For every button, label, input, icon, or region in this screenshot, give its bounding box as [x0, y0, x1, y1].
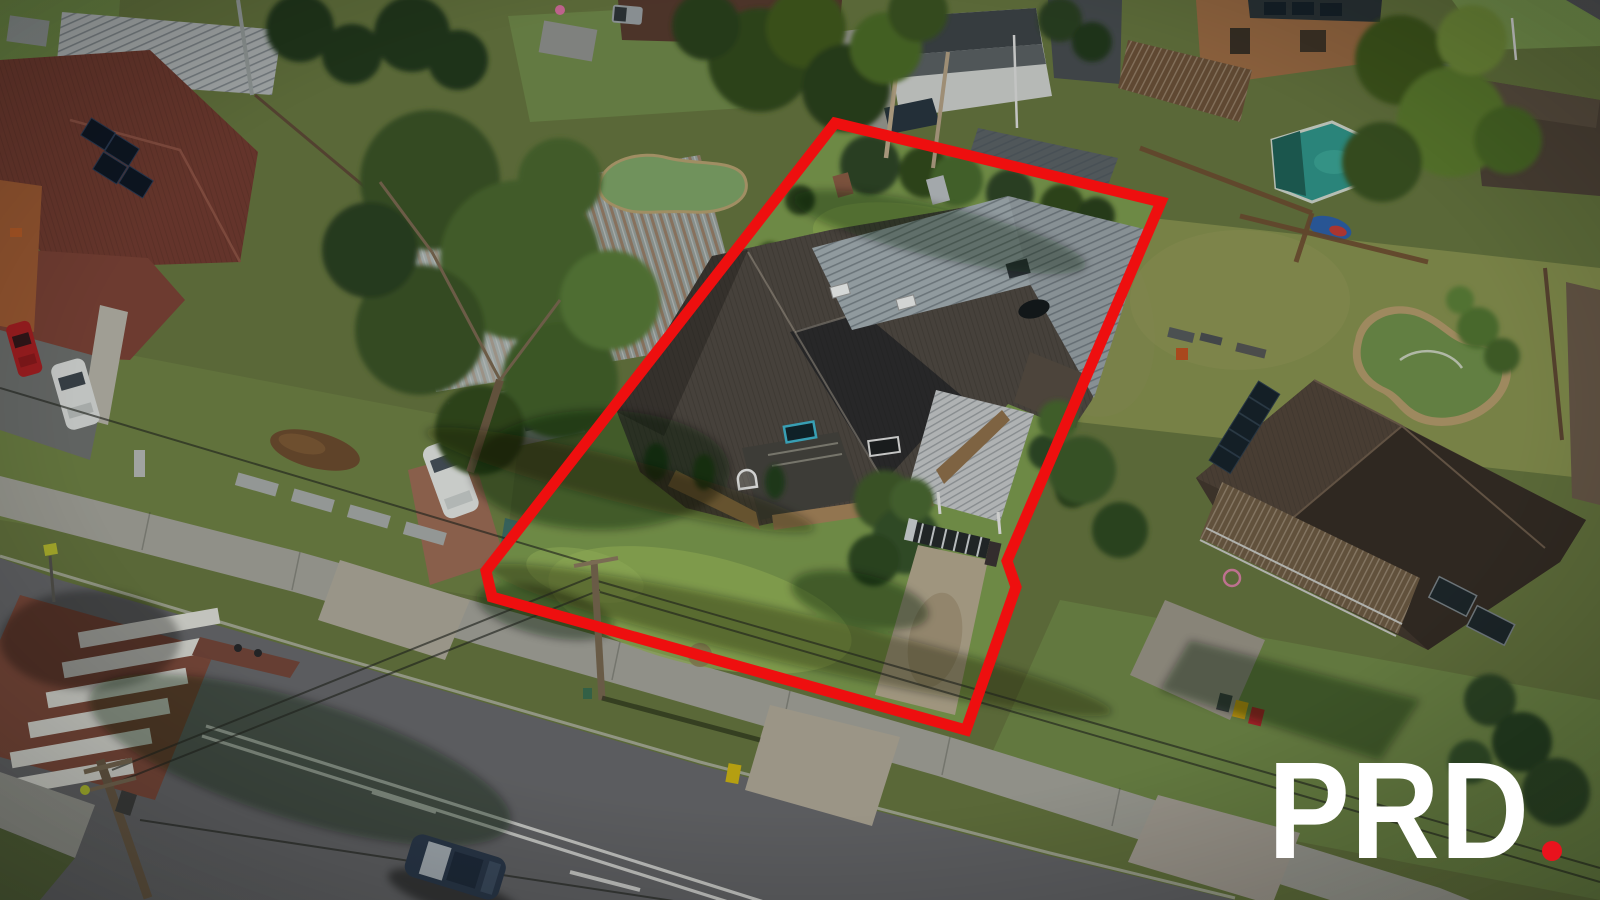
- watermark-dot: [1542, 841, 1562, 861]
- aerial-property-photo: PRD: [0, 0, 1600, 900]
- brand-watermark: PRD: [1268, 734, 1562, 888]
- aerial-scene: PRD: [0, 0, 1600, 900]
- watermark-text: PRD: [1268, 734, 1530, 888]
